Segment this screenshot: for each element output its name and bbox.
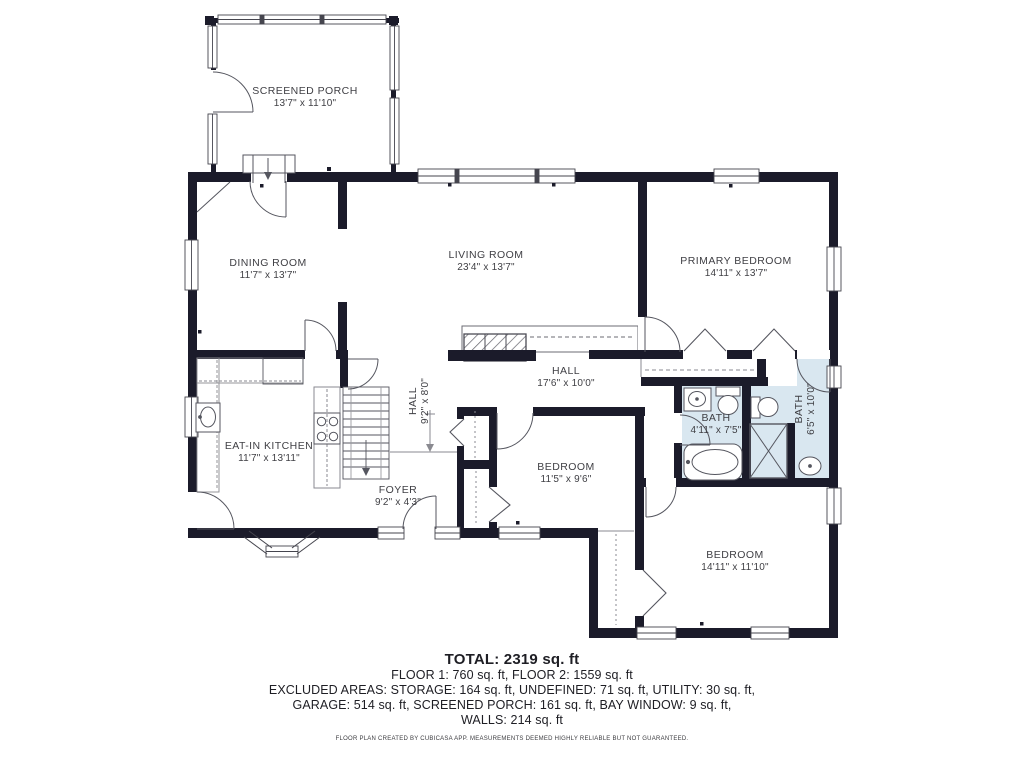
primary-bedroom-door [645,317,680,352]
rear-bedroom-closet-bifold [643,570,666,616]
summary-floors: FLOOR 1: 760 sq. ft, FLOOR 2: 1559 sq. f… [0,668,1024,683]
porch-side-door [213,72,253,112]
bath2-toilet-icon [751,397,778,418]
room-label-primary-bedroom: PRIMARY BEDROOM 14'11" x 13'7" [680,255,791,279]
dining-to-kitchen-door [305,320,336,351]
stairs [343,387,389,479]
dining-corner-line [197,182,230,212]
middle-bedroom-door [497,413,533,449]
room-label-hall: HALL 17'6" x 10'0" [537,365,594,389]
floor-plan: SCREENED PORCH 13'7" x 11'10" DINING ROO… [0,0,1024,768]
room-label-dining: DINING ROOM 11'7" x 13'7" [229,257,306,281]
room-label-kitchen: EAT-IN KITCHEN 11'7" x 13'11" [225,440,313,464]
room-label-stair-hall: HALL 9'2" x 8'0" [407,378,431,424]
rear-bedroom-door [646,487,676,517]
bath2-sink-icon [799,457,821,475]
summary-walls: WALLS: 214 sq. ft [0,713,1024,728]
primary-closet-bifold-1 [684,329,726,351]
room-label-foyer: FOYER 9'2" x 4'3" [375,484,421,508]
area-summary: TOTAL: 2319 sq. ft FLOOR 1: 760 sq. ft, … [0,651,1024,742]
stove [314,387,340,488]
kitchen-side-door [197,492,234,529]
living-to-hall-door [348,359,378,389]
summary-total: TOTAL: 2319 sq. ft [0,651,1024,668]
kitchen-sink [196,403,220,432]
bath1-vanity-sink-icon [684,388,711,411]
bath1-toilet-icon [716,387,740,415]
room-label-middle-bedroom: BEDROOM 11'5" x 9'6" [537,461,594,485]
room-label-screened-porch: SCREENED PORCH 13'7" x 11'10" [252,85,357,109]
porch-to-dining-door [250,181,286,217]
primary-closet-bifold-2 [753,329,795,351]
summary-excluded-1: EXCLUDED AREAS: STORAGE: 164 sq. ft, UND… [0,683,1024,698]
room-label-primary-bath: BATH 6'5" x 10'0" [793,383,817,435]
room-label-rear-bedroom: BEDROOM 14'11" x 11'10" [701,549,768,573]
room-label-hall-bath: BATH 4'11" x 7'5" [691,412,742,436]
summary-excluded-2: GARAGE: 514 sq. ft, SCREENED PORCH: 161 … [0,698,1024,713]
bath1-bathtub-icon [684,444,742,480]
room-label-living: LIVING ROOM 23'4" x 13'7" [449,249,524,273]
summary-disclaimer: FLOOR PLAN CREATED BY CUBICASA APP. MEAS… [0,736,1024,742]
